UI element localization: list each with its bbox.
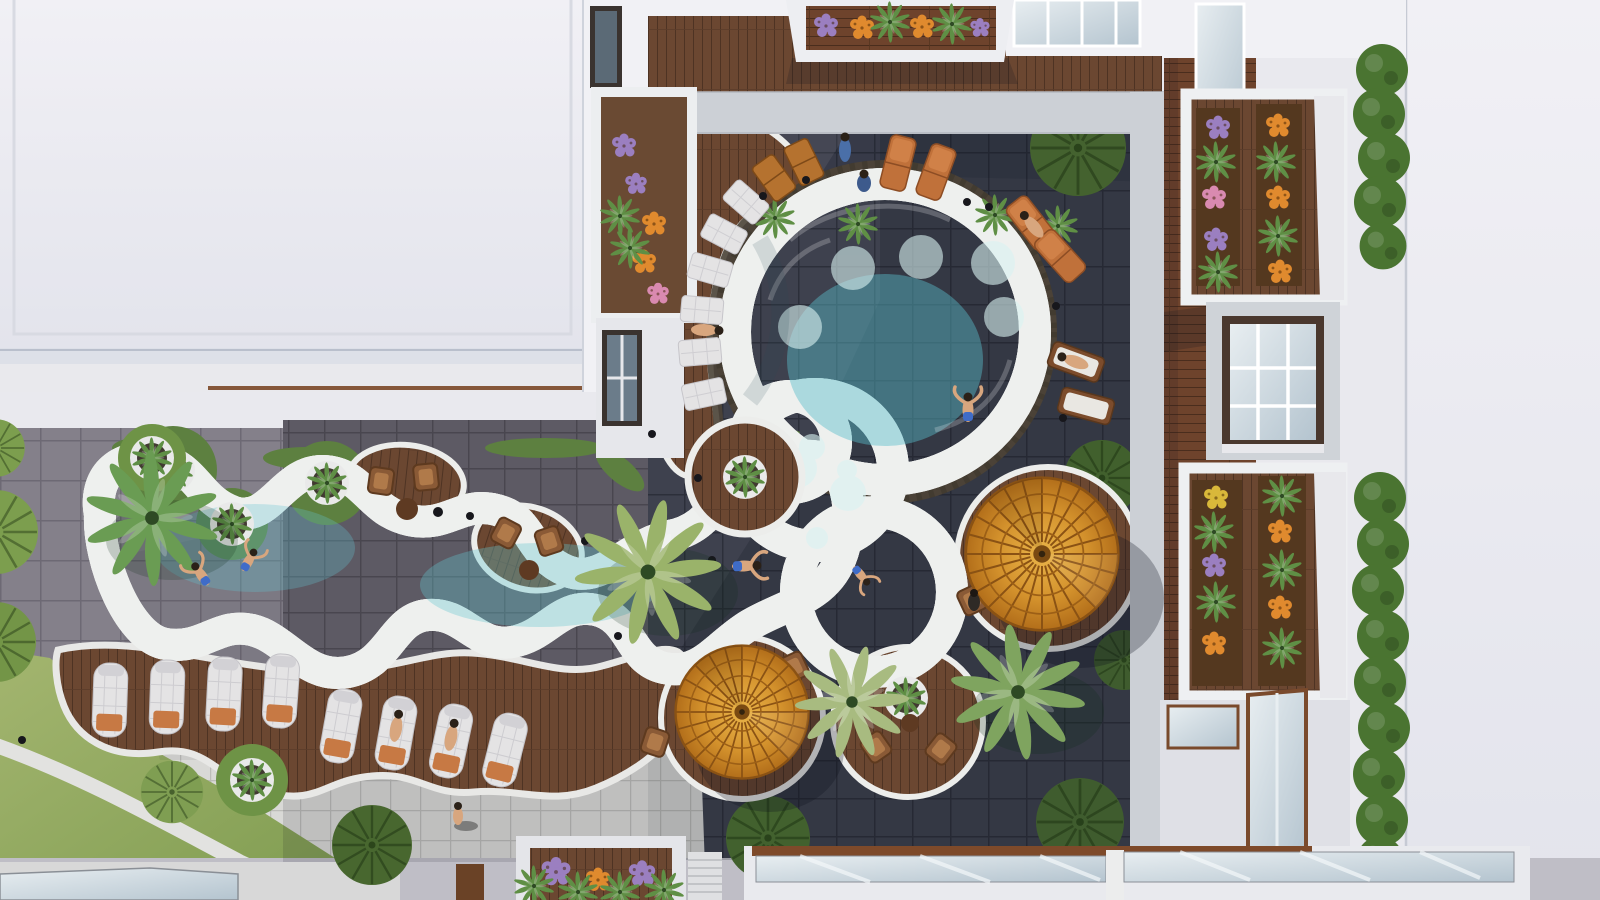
balcony-upper [1186,94,1344,300]
person-standing [839,133,851,163]
aerial-courtyard-scene: Aerial top-down view of a resort courtya… [0,0,1600,900]
amber-umbrella-south [676,646,809,779]
skylight-glass-top [1014,0,1140,46]
grass-circle [332,805,412,885]
screenshot-root: Aerial top-down view of a resort courtya… [0,0,1600,900]
sun-lounger [205,656,243,732]
corner-skylight-glass [0,868,238,900]
bottom-planter-box [514,836,686,900]
sun-lounger [149,659,186,734]
hanging-balcony-north [786,0,1014,62]
grass-circle-light [141,761,203,823]
main-building-roof [0,0,648,392]
right-building-roof [1406,0,1600,900]
small-wood-box [456,864,484,900]
west-flower-balcony [596,92,692,318]
amber-umbrella-east [966,478,1119,631]
window-unit-east [1206,302,1340,460]
west-window-unit [596,318,684,458]
sun-lounger [92,662,129,737]
sun-lounger [261,653,300,729]
balcony-lower [1184,468,1346,698]
stairs [688,852,722,900]
deep-water [787,274,983,446]
bottom-skylight [744,846,1530,900]
